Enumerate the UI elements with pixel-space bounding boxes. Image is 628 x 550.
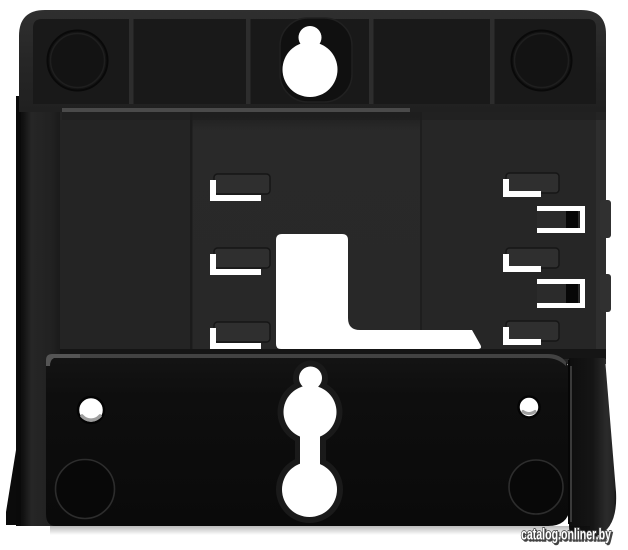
- svg-text:catalog.onliner.by: catalog.onliner.by: [521, 525, 611, 543]
